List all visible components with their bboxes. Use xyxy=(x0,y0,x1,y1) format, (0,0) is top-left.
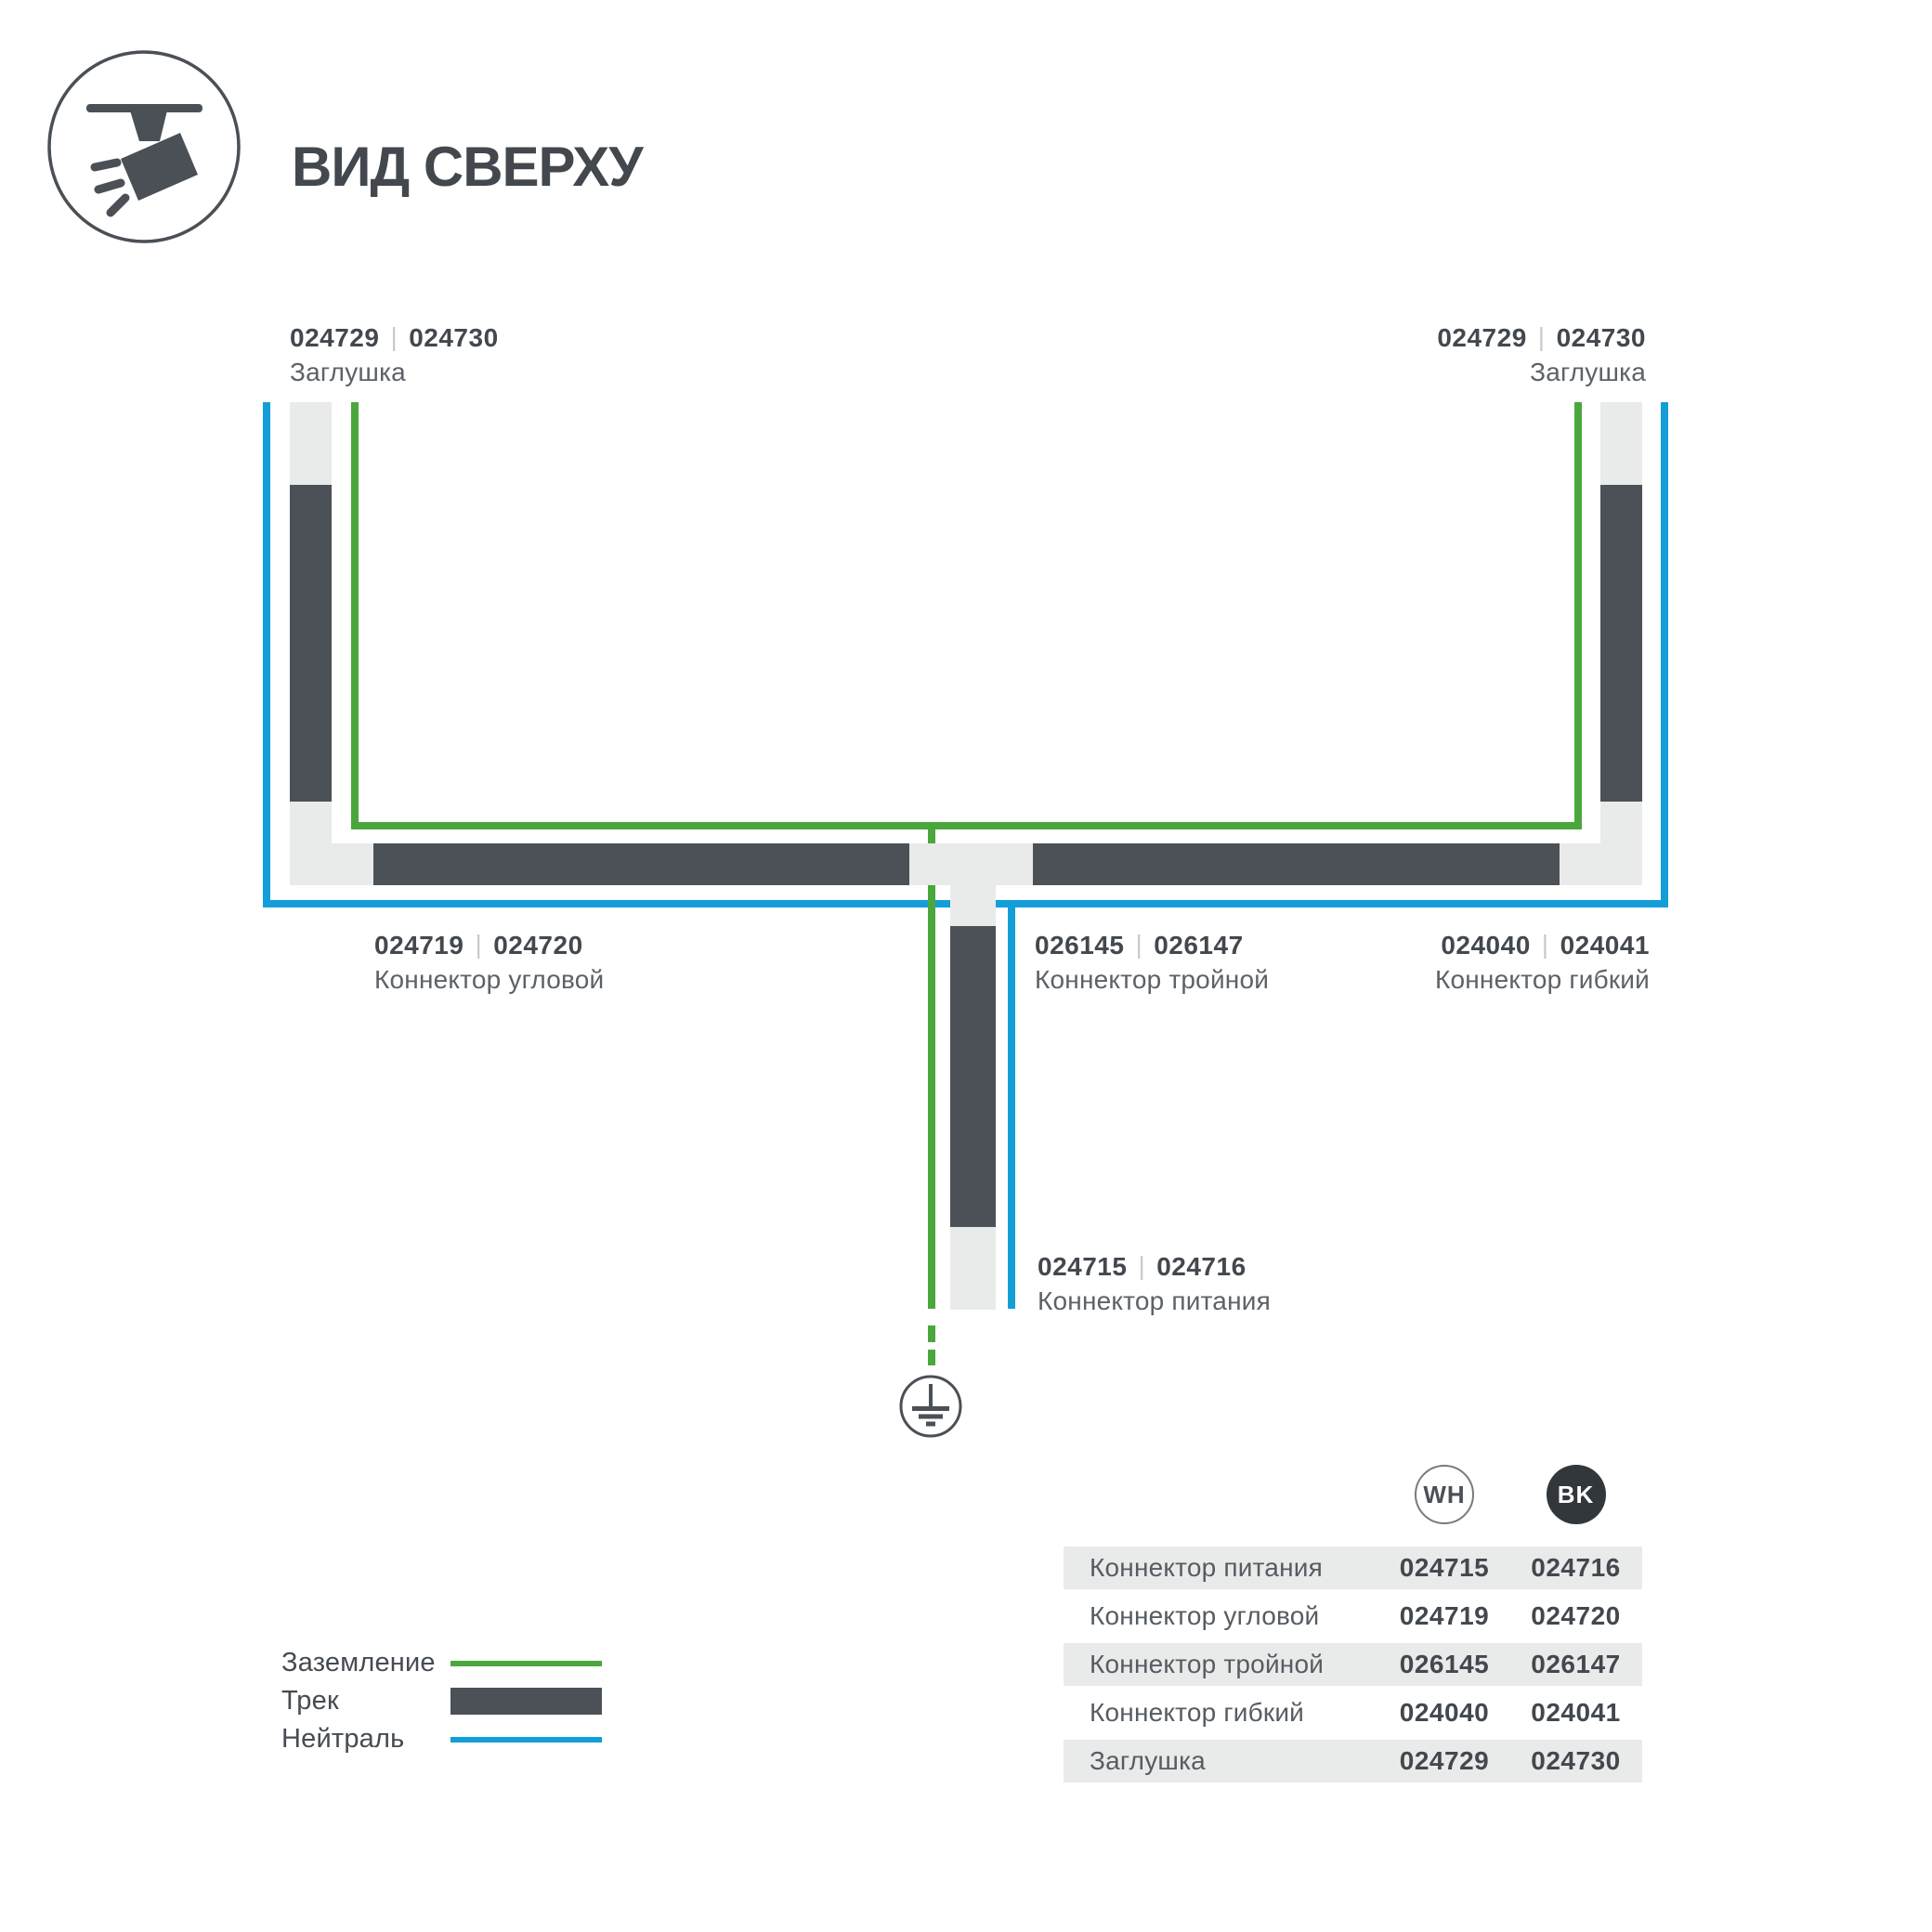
legend-item-neutral: Нейтраль xyxy=(281,1720,602,1758)
code-bk: 026147 xyxy=(1154,931,1243,959)
row-code-wh: 024040 xyxy=(1379,1698,1509,1728)
top-view-diagram-page: ВИД СВЕРХУ 024729|024730 Заглушка 024729… xyxy=(0,0,1932,1932)
label-power-connector: 024715|024716 Коннектор питания xyxy=(1038,1253,1271,1315)
legend-label: Трек xyxy=(281,1686,450,1717)
row-part-name: Коннектор гибкий xyxy=(1064,1698,1379,1728)
part-name: Заглушка xyxy=(290,359,499,386)
earth-ground-symbol xyxy=(901,1377,960,1436)
label-triple-connector: 026145|026147 Коннектор тройной xyxy=(1035,932,1269,994)
legend-label: Нейтраль xyxy=(281,1724,450,1755)
track-segment-center-vertical xyxy=(950,926,996,1227)
row-code-bk: 026147 xyxy=(1509,1650,1642,1679)
track-segment-left-vertical xyxy=(290,485,332,802)
row-code-wh: 024715 xyxy=(1379,1553,1509,1583)
code-bk: 024041 xyxy=(1560,931,1650,959)
color-chip-white: WH xyxy=(1415,1465,1474,1524)
code-wh: 024729 xyxy=(290,323,379,352)
part-codes: 024729|024730 xyxy=(1437,324,1646,352)
part-name: Коннектор гибкий xyxy=(1435,966,1650,994)
part-codes: 024715|024716 xyxy=(1038,1253,1271,1281)
row-code-bk: 024730 xyxy=(1509,1746,1642,1776)
label-endcap-left: 024729|024730 Заглушка xyxy=(290,324,499,386)
table-row: Коннектор питания 024715 024716 xyxy=(1064,1544,1642,1592)
code-bk: 024730 xyxy=(1557,323,1646,352)
code-bk: 024716 xyxy=(1156,1252,1246,1281)
track-segment-left-horizontal xyxy=(373,843,909,885)
code-separator: | xyxy=(1138,1251,1145,1280)
row-code-wh: 024719 xyxy=(1379,1601,1509,1631)
track-segment-right-horizontal xyxy=(1033,843,1560,885)
code-wh: 024715 xyxy=(1038,1252,1127,1281)
ground-wire xyxy=(355,402,1578,826)
part-codes: 026145|026147 xyxy=(1035,932,1269,959)
legend-item-ground: Заземление xyxy=(281,1644,602,1682)
corner-connector-right xyxy=(1560,802,1642,885)
row-code-bk: 024716 xyxy=(1509,1553,1642,1583)
row-code-bk: 024041 xyxy=(1509,1698,1642,1728)
part-name: Коннектор тройной xyxy=(1035,966,1269,994)
row-code-wh: 024729 xyxy=(1379,1746,1509,1776)
part-name: Коннектор угловой xyxy=(374,966,604,994)
row-part-name: Коннектор угловой xyxy=(1064,1601,1379,1631)
code-separator: | xyxy=(390,322,398,351)
part-name: Заглушка xyxy=(1437,359,1646,386)
endcap-right xyxy=(1600,402,1642,485)
code-wh: 024040 xyxy=(1441,931,1530,959)
spotlight-icon-badge xyxy=(46,49,241,244)
code-bk: 024720 xyxy=(493,931,582,959)
row-part-name: Коннектор тройной xyxy=(1064,1650,1379,1679)
part-codes: 024729|024730 xyxy=(290,324,499,352)
label-flexible-connector: 024040|024041 Коннектор гибкий xyxy=(1435,932,1650,994)
table-row: Коннектор угловой 024719 024720 xyxy=(1064,1592,1642,1640)
color-chip-black: BK xyxy=(1547,1465,1606,1524)
code-separator: | xyxy=(1542,930,1549,959)
code-wh: 024729 xyxy=(1437,323,1526,352)
row-code-wh: 026145 xyxy=(1379,1650,1509,1679)
table-header: WH BK xyxy=(1064,1465,1642,1544)
neutral-line-swatch xyxy=(450,1737,602,1743)
legend: Заземление Трек Нейтраль xyxy=(281,1644,602,1758)
table-row: Коннектор тройной 026145 026147 xyxy=(1064,1640,1642,1689)
part-name: Коннектор питания xyxy=(1038,1287,1271,1315)
row-part-name: Заглушка xyxy=(1064,1746,1379,1776)
table-row: Коннектор гибкий 024040 024041 xyxy=(1064,1689,1642,1737)
corner-connector-left xyxy=(290,802,373,885)
label-corner-connector: 024719|024720 Коннектор угловой xyxy=(374,932,604,994)
code-bk: 024730 xyxy=(409,323,498,352)
code-wh: 026145 xyxy=(1035,931,1124,959)
code-separator: | xyxy=(1538,322,1546,351)
part-number-table: WH BK Коннектор питания 024715 024716 Ко… xyxy=(1064,1465,1642,1785)
power-connector xyxy=(950,1227,996,1310)
table-row: Заглушка 024729 024730 xyxy=(1064,1737,1642,1785)
part-codes: 024719|024720 xyxy=(374,932,604,959)
code-separator: | xyxy=(475,930,482,959)
ground-line-swatch xyxy=(450,1661,602,1666)
row-part-name: Коннектор питания xyxy=(1064,1553,1379,1583)
legend-item-track: Трек xyxy=(281,1682,602,1720)
track-segment-right-vertical xyxy=(1600,485,1642,802)
track-spotlight-icon xyxy=(46,49,241,244)
page-title: ВИД СВЕРХУ xyxy=(292,137,643,197)
label-endcap-right: 024729|024730 Заглушка xyxy=(1437,324,1646,386)
code-separator: | xyxy=(1135,930,1142,959)
legend-label: Заземление xyxy=(281,1648,450,1678)
part-codes: 024040|024041 xyxy=(1435,932,1650,959)
endcap-left xyxy=(290,402,332,485)
code-wh: 024719 xyxy=(374,931,463,959)
track-bar-swatch xyxy=(450,1688,602,1715)
row-code-bk: 024720 xyxy=(1509,1601,1642,1631)
